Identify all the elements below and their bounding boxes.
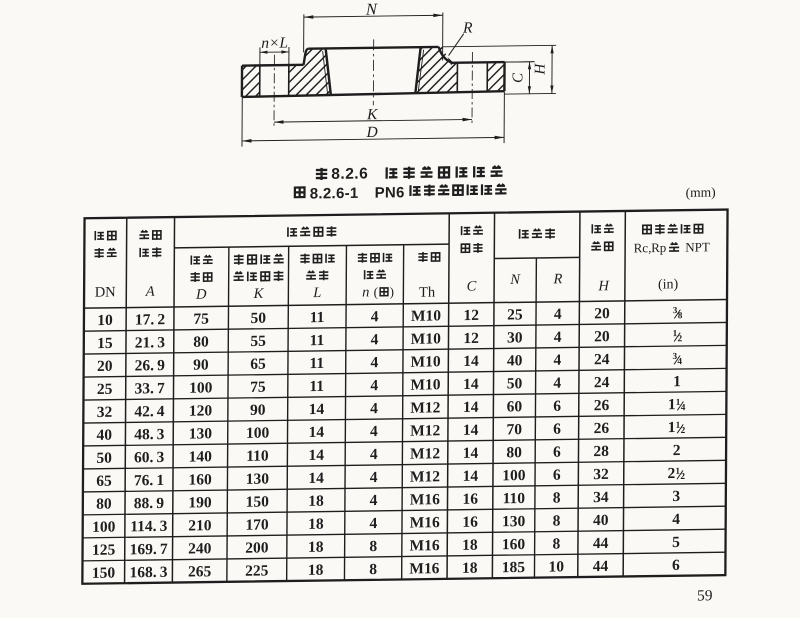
- svg-text:26. 9: 26. 9: [135, 357, 166, 374]
- svg-text:A: A: [145, 284, 155, 300]
- svg-text:4: 4: [371, 331, 379, 348]
- svg-text:42. 4: 42. 4: [134, 403, 165, 420]
- svg-text:225: 225: [245, 562, 269, 579]
- svg-text:88. 9: 88. 9: [134, 495, 165, 512]
- svg-text:M10: M10: [411, 353, 441, 370]
- svg-text:N: N: [365, 0, 378, 19]
- svg-text:4: 4: [554, 306, 562, 323]
- svg-text:190: 190: [188, 494, 212, 511]
- svg-text:125: 125: [92, 542, 116, 559]
- svg-text:90: 90: [250, 402, 266, 419]
- svg-text:40: 40: [593, 512, 609, 529]
- svg-text:60. 3: 60. 3: [134, 449, 165, 466]
- svg-text:M10: M10: [411, 330, 441, 347]
- svg-text:25: 25: [507, 306, 523, 323]
- svg-text:18: 18: [308, 493, 324, 510]
- svg-text:160: 160: [188, 471, 212, 488]
- svg-text:4: 4: [369, 515, 377, 532]
- svg-text:55: 55: [250, 333, 266, 350]
- svg-text:M12: M12: [410, 468, 440, 485]
- svg-text:4: 4: [554, 352, 562, 369]
- svg-text:80: 80: [193, 334, 209, 351]
- svg-text:150: 150: [92, 565, 116, 582]
- svg-text:130: 130: [246, 471, 270, 488]
- svg-text:40: 40: [97, 427, 113, 444]
- svg-text:4: 4: [553, 375, 561, 392]
- svg-text:50: 50: [251, 310, 267, 327]
- svg-text:33. 7: 33. 7: [134, 380, 165, 397]
- svg-text:(in): (in): [658, 277, 679, 292]
- svg-text:8.2.6-1: 8.2.6-1: [310, 185, 359, 203]
- svg-text:44: 44: [593, 558, 609, 575]
- svg-text:2: 2: [681, 425, 686, 435]
- svg-text:200: 200: [245, 539, 269, 556]
- svg-text:75: 75: [193, 311, 209, 328]
- svg-text:169. 7: 169. 7: [130, 541, 168, 559]
- svg-text:C: C: [510, 72, 526, 83]
- svg-text:11: 11: [309, 355, 324, 372]
- svg-text:12: 12: [464, 307, 480, 324]
- svg-text:21. 3: 21. 3: [135, 334, 166, 351]
- svg-text:160: 160: [502, 536, 526, 553]
- svg-text:14: 14: [463, 376, 479, 393]
- svg-text:8: 8: [552, 536, 560, 553]
- svg-text:16: 16: [462, 514, 478, 531]
- svg-text:14: 14: [309, 401, 325, 418]
- svg-text:80: 80: [96, 496, 112, 513]
- svg-text:14: 14: [463, 468, 479, 485]
- svg-text:150: 150: [246, 493, 270, 510]
- svg-text:65: 65: [250, 356, 266, 373]
- svg-text:5: 5: [672, 534, 680, 551]
- svg-text:14: 14: [463, 445, 479, 462]
- svg-text:M12: M12: [410, 399, 440, 416]
- svg-text:14: 14: [463, 353, 479, 370]
- svg-text:): ): [390, 284, 394, 299]
- svg-text:(: (: [374, 284, 378, 299]
- svg-text:70: 70: [506, 421, 522, 438]
- svg-text:M12: M12: [410, 422, 440, 439]
- svg-text:32: 32: [97, 404, 113, 421]
- svg-text:44: 44: [593, 535, 609, 552]
- svg-text:4: 4: [672, 511, 680, 528]
- svg-text:8: 8: [553, 490, 561, 507]
- svg-text:240: 240: [188, 540, 212, 557]
- svg-text:18: 18: [308, 539, 324, 556]
- svg-text:4: 4: [371, 308, 379, 325]
- svg-text:4: 4: [370, 354, 378, 371]
- svg-text:210: 210: [188, 517, 212, 534]
- svg-text:Rc: Rc: [634, 240, 649, 255]
- svg-text:NPT: NPT: [685, 239, 710, 254]
- svg-text:40: 40: [507, 352, 523, 369]
- svg-text:30: 30: [507, 329, 523, 346]
- svg-text:K: K: [366, 106, 378, 123]
- svg-text:L: L: [312, 285, 321, 301]
- svg-text:M16: M16: [410, 514, 440, 531]
- svg-text:50: 50: [96, 450, 112, 467]
- svg-text:C: C: [467, 278, 477, 294]
- svg-text:4: 4: [370, 469, 378, 486]
- svg-text:2: 2: [673, 442, 681, 459]
- svg-text:M16: M16: [409, 537, 439, 554]
- svg-text:100: 100: [502, 467, 526, 484]
- svg-text:1: 1: [668, 396, 676, 413]
- svg-text:18: 18: [308, 516, 324, 533]
- svg-text:4: 4: [370, 377, 378, 394]
- svg-text:M10: M10: [410, 376, 440, 393]
- svg-text:(mm): (mm): [686, 185, 716, 200]
- svg-text:140: 140: [189, 448, 213, 465]
- svg-text:4: 4: [370, 400, 378, 417]
- svg-text:K: K: [253, 286, 265, 302]
- svg-text:14: 14: [308, 470, 324, 487]
- svg-text:20: 20: [97, 358, 113, 375]
- svg-text:8: 8: [678, 310, 683, 320]
- svg-text:Rp: Rp: [651, 240, 666, 255]
- svg-text:4: 4: [370, 446, 378, 463]
- svg-text:12: 12: [463, 330, 479, 347]
- svg-text:48. 3: 48. 3: [134, 426, 165, 443]
- svg-text:Th: Th: [419, 285, 436, 301]
- svg-text:4: 4: [370, 423, 378, 440]
- svg-text:20: 20: [594, 328, 610, 345]
- svg-text:100: 100: [246, 425, 270, 442]
- svg-text:4: 4: [677, 356, 682, 366]
- svg-text:17. 2: 17. 2: [135, 311, 166, 328]
- svg-text:2: 2: [667, 465, 675, 482]
- svg-text:14: 14: [463, 422, 479, 439]
- svg-text:34: 34: [593, 489, 609, 506]
- svg-text:26: 26: [594, 420, 610, 437]
- svg-text:76. 1: 76. 1: [134, 472, 164, 489]
- svg-text:65: 65: [96, 473, 112, 490]
- svg-text:M12: M12: [410, 445, 440, 462]
- svg-text:265: 265: [188, 563, 212, 580]
- svg-text:18: 18: [462, 560, 478, 577]
- svg-text:32: 32: [593, 466, 609, 483]
- svg-text:6: 6: [553, 444, 561, 461]
- svg-text:75: 75: [250, 379, 266, 396]
- svg-text:4: 4: [370, 492, 378, 509]
- svg-text:M16: M16: [409, 560, 439, 577]
- svg-text:1: 1: [668, 419, 676, 436]
- svg-text:4: 4: [681, 402, 686, 412]
- svg-text:M10: M10: [411, 307, 441, 324]
- svg-text:1: 1: [673, 373, 681, 390]
- svg-text:80: 80: [506, 444, 522, 461]
- svg-text:10: 10: [97, 312, 113, 329]
- svg-text:4: 4: [554, 329, 562, 346]
- svg-text:50: 50: [507, 375, 523, 392]
- svg-text:10: 10: [548, 558, 564, 575]
- svg-text:90: 90: [193, 356, 209, 373]
- svg-text:11: 11: [309, 378, 324, 395]
- svg-text:14: 14: [463, 399, 479, 416]
- svg-text:120: 120: [189, 402, 213, 419]
- svg-text:R: R: [552, 271, 562, 287]
- svg-text:R: R: [462, 20, 473, 37]
- svg-text:185: 185: [502, 559, 526, 576]
- svg-text:59: 59: [697, 587, 713, 604]
- svg-text:130: 130: [502, 513, 526, 530]
- svg-text:26: 26: [594, 397, 610, 414]
- svg-text:n: n: [362, 284, 369, 300]
- svg-text:D: D: [195, 287, 207, 303]
- svg-text:2: 2: [680, 471, 685, 481]
- svg-text:130: 130: [189, 425, 213, 442]
- svg-text:110: 110: [246, 448, 269, 465]
- svg-text:16: 16: [462, 491, 478, 508]
- svg-text:24: 24: [594, 351, 610, 368]
- svg-text:18: 18: [462, 537, 478, 554]
- svg-text:6: 6: [553, 398, 561, 415]
- svg-text:15: 15: [97, 335, 113, 352]
- svg-text:100: 100: [189, 379, 213, 396]
- svg-text:6: 6: [553, 467, 561, 484]
- svg-text:25: 25: [97, 381, 113, 398]
- svg-text:24: 24: [594, 374, 610, 391]
- svg-text:n×L: n×L: [261, 35, 288, 52]
- svg-text:2: 2: [678, 333, 683, 343]
- svg-text:8: 8: [369, 561, 377, 578]
- svg-text:8: 8: [369, 538, 377, 555]
- svg-text:168. 3: 168. 3: [129, 564, 167, 582]
- svg-text:H: H: [597, 278, 610, 294]
- svg-text:28: 28: [593, 443, 609, 460]
- svg-text:3: 3: [672, 488, 680, 505]
- svg-text:M16: M16: [410, 491, 440, 508]
- svg-text:114. 3: 114. 3: [130, 518, 167, 536]
- svg-text:6: 6: [553, 421, 561, 438]
- svg-text:PN6: PN6: [375, 184, 405, 201]
- svg-text:11: 11: [310, 332, 325, 349]
- svg-text:6: 6: [672, 557, 680, 574]
- svg-text:D: D: [365, 124, 377, 141]
- svg-text:60: 60: [507, 398, 523, 415]
- svg-text:DN: DN: [95, 284, 117, 300]
- svg-text:20: 20: [594, 305, 610, 322]
- svg-text:14: 14: [309, 424, 325, 441]
- svg-text:H: H: [532, 62, 548, 75]
- svg-text:18: 18: [308, 562, 324, 579]
- svg-text:14: 14: [309, 447, 325, 464]
- svg-text:100: 100: [92, 519, 116, 536]
- svg-text:N: N: [509, 272, 521, 288]
- svg-text:8: 8: [553, 513, 561, 530]
- svg-text:170: 170: [245, 516, 269, 533]
- svg-text:8.2.6: 8.2.6: [331, 165, 368, 182]
- svg-text:11: 11: [310, 309, 325, 326]
- svg-text:110: 110: [503, 490, 526, 507]
